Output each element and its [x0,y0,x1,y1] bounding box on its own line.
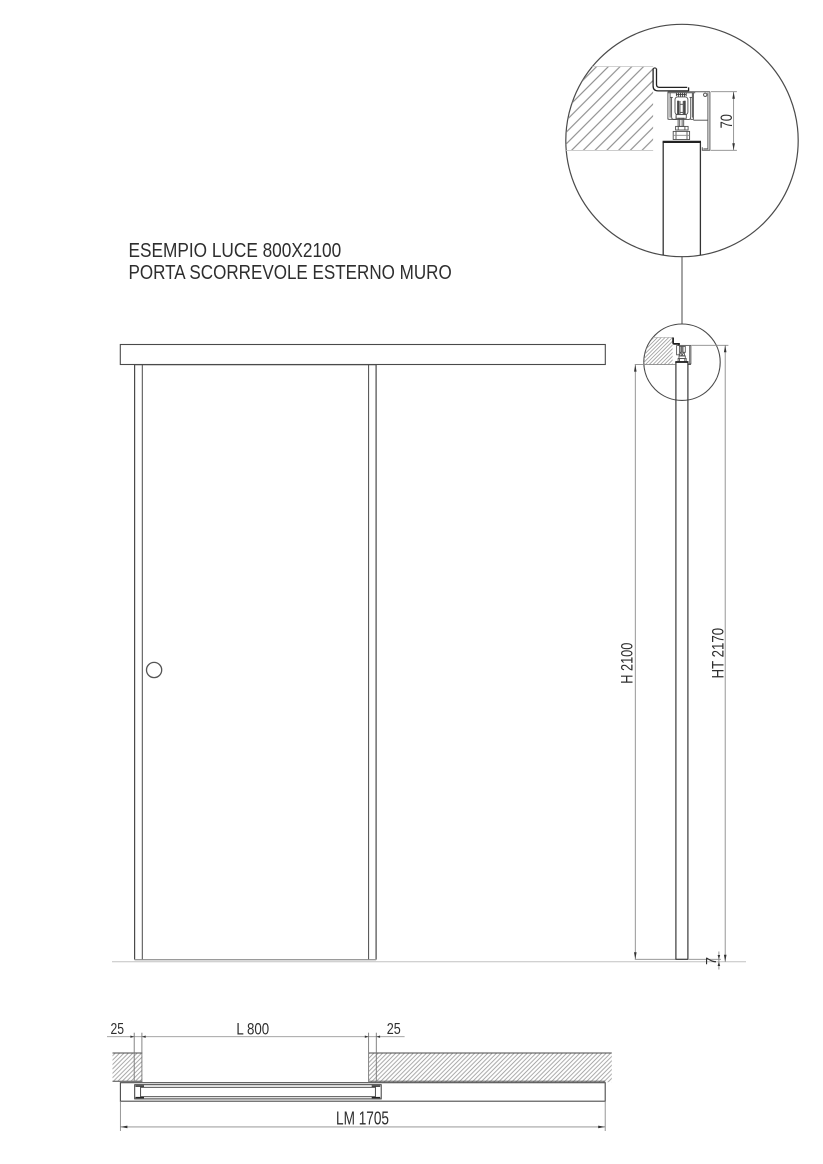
svg-text:L 800: L 800 [236,1021,269,1039]
svg-text:PORTA SCORREVOLE ESTERNO MURO: PORTA SCORREVOLE ESTERNO MURO [129,262,452,284]
svg-text:LM 1705: LM 1705 [336,1109,389,1129]
svg-text:7: 7 [704,957,720,965]
svg-text:25: 25 [387,1021,401,1038]
svg-text:25: 25 [110,1021,124,1038]
svg-text:ESEMPIO LUCE 800X2100: ESEMPIO LUCE 800X2100 [129,240,342,262]
svg-text:HT 2170: HT 2170 [709,628,727,679]
svg-text:H 2100: H 2100 [618,643,636,684]
svg-text:70: 70 [718,114,736,128]
